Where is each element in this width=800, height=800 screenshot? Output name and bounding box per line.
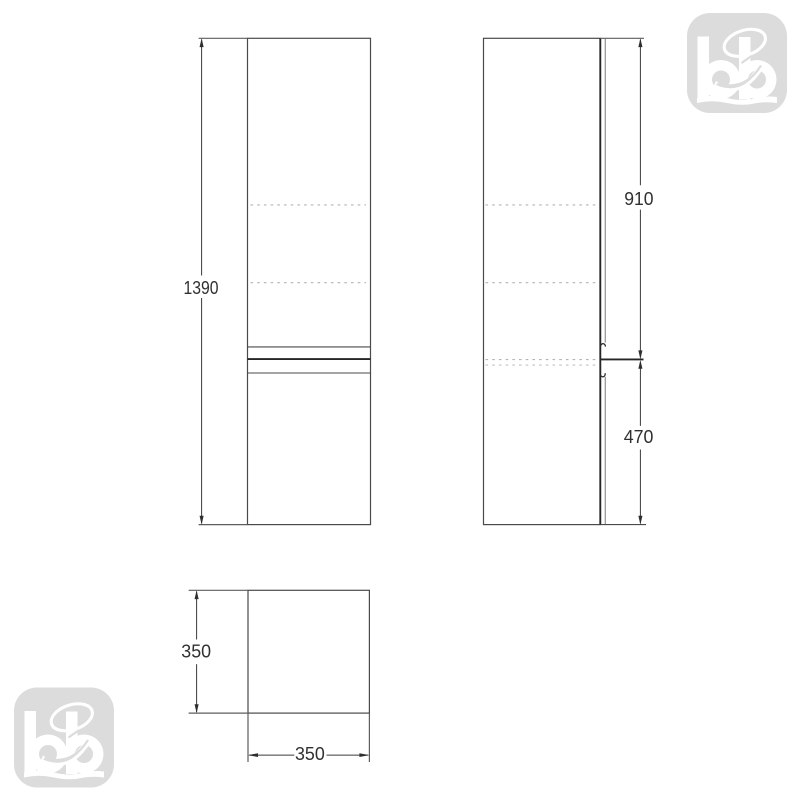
svg-text:350: 350 [295,744,325,764]
svg-text:910: 910 [624,189,653,209]
svg-text:470: 470 [624,427,654,447]
svg-text:1390: 1390 [184,278,219,298]
svg-text:350: 350 [181,642,211,662]
